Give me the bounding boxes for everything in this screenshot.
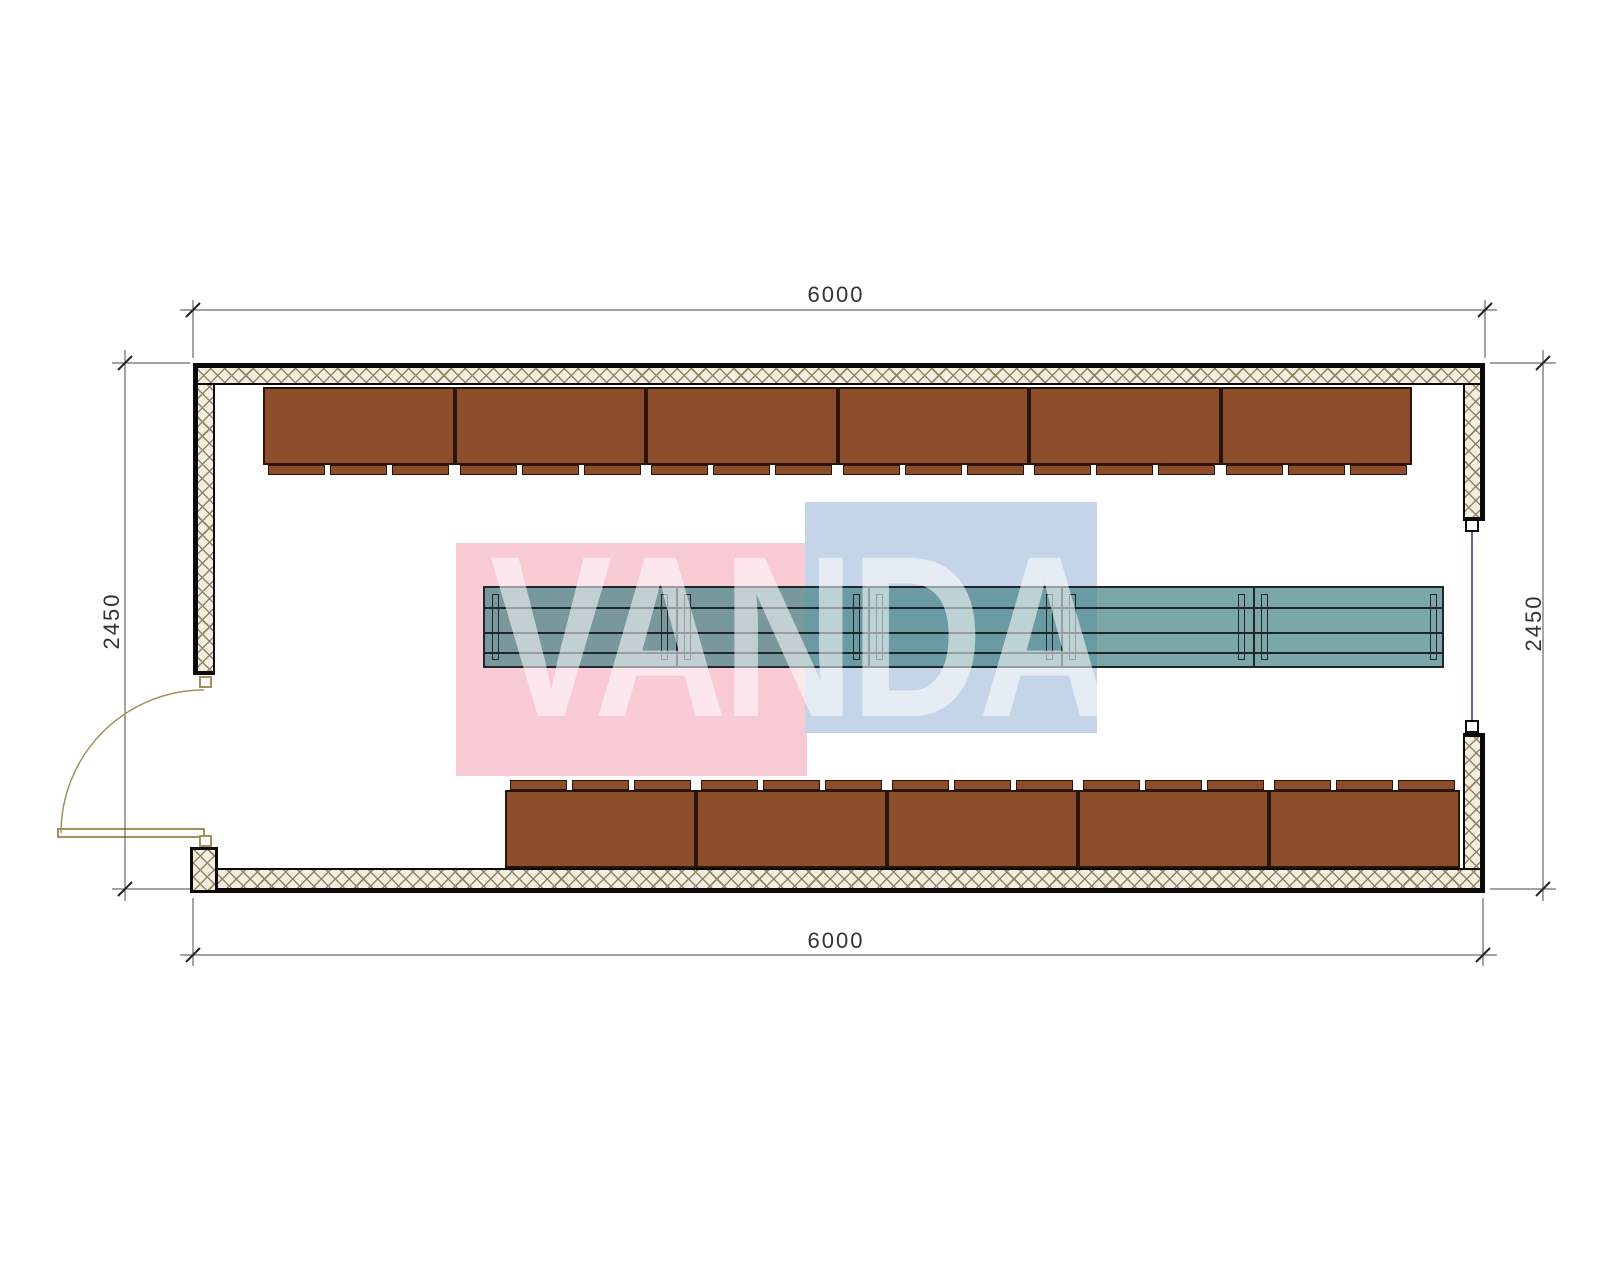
bench-tab bbox=[522, 465, 579, 475]
floor-plan-canvas: 6000 6000 2450 2450 VANDA bbox=[0, 0, 1600, 1280]
bench-tab bbox=[825, 780, 882, 790]
dimension-label-bottom: 6000 bbox=[776, 928, 896, 954]
bench-tab bbox=[572, 780, 629, 790]
bench-tab bbox=[1350, 465, 1407, 475]
bench-tab bbox=[1398, 780, 1455, 790]
bench-tab bbox=[713, 465, 770, 475]
bench-tab bbox=[510, 780, 567, 790]
door-leaf bbox=[57, 828, 205, 838]
bench-tab bbox=[1336, 780, 1393, 790]
bench-tab bbox=[1034, 465, 1091, 475]
bench-tab bbox=[1274, 780, 1331, 790]
bench-tab bbox=[967, 465, 1024, 475]
bench-tab bbox=[701, 780, 758, 790]
door-jamb-upper bbox=[199, 676, 212, 688]
bench-tab bbox=[1288, 465, 1345, 475]
bench-tab bbox=[392, 465, 449, 475]
window-jamb-lower bbox=[1465, 720, 1479, 733]
bench bbox=[838, 387, 1030, 465]
bench-tab bbox=[763, 780, 820, 790]
bench-tab bbox=[1016, 780, 1073, 790]
bench bbox=[696, 790, 887, 868]
bench-tab bbox=[460, 465, 517, 475]
bench bbox=[505, 790, 696, 868]
bench-tab bbox=[1145, 780, 1202, 790]
watermark-text: VANDA bbox=[478, 545, 1118, 728]
wall-door-corner-block bbox=[190, 847, 218, 893]
bench-tab bbox=[268, 465, 325, 475]
bench-tab bbox=[905, 465, 962, 475]
door-swing-arc bbox=[61, 690, 204, 833]
bench-tab bbox=[330, 465, 387, 475]
bench bbox=[646, 387, 838, 465]
bench bbox=[887, 790, 1078, 868]
table-section-divider bbox=[1253, 588, 1255, 666]
bench-tab bbox=[892, 780, 949, 790]
wall-right-lower bbox=[1463, 733, 1485, 868]
bench-tab bbox=[1158, 465, 1215, 475]
bench bbox=[1029, 387, 1221, 465]
wall-top bbox=[193, 363, 1485, 385]
door-jamb-lower bbox=[199, 835, 212, 847]
dimension-label-right: 2450 bbox=[1521, 563, 1543, 683]
bench-tab bbox=[1207, 780, 1264, 790]
wall-bottom bbox=[218, 868, 1485, 893]
wall-left bbox=[193, 385, 215, 675]
table-leg bbox=[1238, 594, 1245, 660]
bench-tab bbox=[651, 465, 708, 475]
bench bbox=[1078, 790, 1269, 868]
window-jamb-upper bbox=[1465, 519, 1479, 532]
bench-tab bbox=[843, 465, 900, 475]
bench-tab bbox=[954, 780, 1011, 790]
dimension-label-top: 6000 bbox=[776, 282, 896, 308]
bench bbox=[1269, 790, 1460, 868]
bench-tab bbox=[634, 780, 691, 790]
dimension-top bbox=[180, 300, 1497, 358]
bench-tab bbox=[1096, 465, 1153, 475]
bench-tab bbox=[1083, 780, 1140, 790]
table-leg bbox=[1261, 594, 1268, 660]
bench-tab bbox=[1226, 465, 1283, 475]
table-leg bbox=[1430, 594, 1437, 660]
wall-right-upper bbox=[1463, 385, 1485, 521]
bench-tab bbox=[775, 465, 832, 475]
bench bbox=[263, 387, 455, 465]
bench bbox=[1221, 387, 1413, 465]
bench bbox=[455, 387, 647, 465]
bench-tab bbox=[584, 465, 641, 475]
dimension-label-left: 2450 bbox=[99, 561, 121, 681]
